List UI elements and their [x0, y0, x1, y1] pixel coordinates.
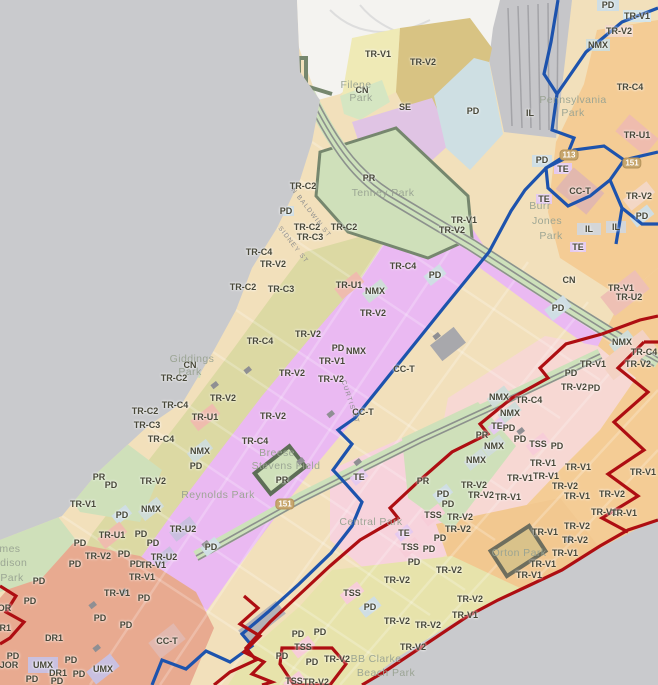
zone-label: TR-V2: [384, 575, 410, 585]
zone-label: TR-V2: [279, 368, 305, 378]
zone-label: TR-V1: [530, 559, 556, 569]
zone-label: TR-V1: [495, 492, 521, 502]
park-label: Park: [0, 572, 23, 584]
zone-label: TR-C4: [631, 347, 658, 357]
zone-label: PD: [118, 549, 131, 559]
highway-shield: 113: [560, 150, 579, 161]
zone-label: CN: [563, 275, 576, 285]
zone-label: TR-V2: [295, 329, 321, 339]
zone-label: PD: [602, 0, 615, 10]
zone-label: TR-V1: [319, 356, 345, 366]
zone-label: PD: [105, 480, 118, 490]
zone-label: JOR: [0, 603, 11, 613]
zone-label: NMX: [500, 408, 520, 418]
park-label: Breese: [259, 447, 295, 459]
zone-label: PR: [276, 475, 289, 485]
zone-label: TR-V2: [461, 480, 487, 490]
zone-label: TSS: [294, 642, 312, 652]
zone-label: TR-U1: [336, 280, 363, 290]
zone-label: TR-V2: [384, 616, 410, 626]
zone-label: DR1: [0, 623, 11, 633]
zone-label: TE: [398, 528, 410, 538]
street-label: CURTIS CT: [340, 379, 361, 424]
zone-label: TSS: [285, 676, 303, 685]
zone-label: TR-V2: [260, 259, 286, 269]
zone-label: TE: [572, 242, 584, 252]
park-label: Giddings: [170, 353, 215, 365]
zone-label: TR-C4: [162, 400, 189, 410]
zone-label: PD: [332, 343, 345, 353]
zone-label: TR-V1: [451, 215, 477, 225]
zone-label: TR-V2: [457, 594, 483, 604]
zone-label: CC-T: [569, 186, 591, 196]
zone-label: TR-V1: [129, 572, 155, 582]
zone-label: PR: [363, 173, 376, 183]
zone-label: PD: [442, 499, 455, 509]
zone-label: IL: [526, 108, 534, 118]
zone-label: TR-U1: [192, 412, 219, 422]
zone-label: PD: [552, 303, 565, 313]
zone-label: TR-V2: [140, 476, 166, 486]
park-label: Park: [561, 107, 584, 119]
zone-label: NMX: [466, 455, 486, 465]
zone-label: TR-V2: [626, 191, 652, 201]
zone-label: TSS: [424, 510, 442, 520]
zone-label: TR-V2: [606, 26, 632, 36]
zone-label: IL: [612, 222, 620, 232]
zone-label: PD: [434, 533, 447, 543]
zone-label: PD: [73, 669, 86, 679]
zone-label: TE: [491, 421, 503, 431]
zone-label: NMX: [190, 446, 210, 456]
zone-label: TR-V1: [630, 467, 656, 477]
zone-label: TR-V2: [260, 411, 286, 421]
park-label: James: [0, 543, 20, 555]
zone-label: TR-V2: [445, 524, 471, 534]
zone-label: TR-U1: [624, 130, 651, 140]
zone-label: PD: [51, 676, 64, 685]
zone-label: TR-C4: [247, 336, 274, 346]
zone-label: PD: [276, 651, 289, 661]
zone-label: TR-V1: [611, 508, 637, 518]
zone-label: PD: [364, 602, 377, 612]
zone-label: TR-V2: [561, 382, 587, 392]
zone-label: NMX: [489, 392, 509, 402]
park-label: Pennsylvania: [539, 94, 606, 106]
zone-label: PR: [476, 430, 489, 440]
zone-label: NMX: [141, 504, 161, 514]
zone-label: TR-C4: [148, 434, 175, 444]
park-label: BB Clarke: [351, 653, 402, 665]
zone-label: TR-V1: [580, 359, 606, 369]
zone-label: PD: [65, 655, 78, 665]
zone-label: PD: [408, 557, 421, 567]
zone-label: PD: [437, 489, 450, 499]
zone-label: TR-V2: [562, 535, 588, 545]
zone-label: PD: [147, 538, 160, 548]
zone-label: TR-V2: [415, 620, 441, 630]
zone-label: TR-V1: [452, 610, 478, 620]
zone-label: TE: [353, 472, 365, 482]
zone-label: UMX: [93, 664, 113, 674]
zone-label: JOR: [0, 660, 18, 670]
zone-label: TR-U1: [99, 530, 126, 540]
zone-label: PD: [69, 559, 82, 569]
zone-label: TSS: [343, 588, 361, 598]
zone-label: PD: [306, 657, 319, 667]
zone-label: TR-V2: [439, 225, 465, 235]
zone-label: NMX: [484, 441, 504, 451]
park-label: Park: [539, 230, 562, 242]
zone-label: TR-C3: [297, 232, 324, 242]
zone-label: PD: [423, 544, 436, 554]
park-label: Tenney Park: [352, 187, 415, 199]
zone-label: TSS: [529, 439, 547, 449]
park-label: Filene: [341, 79, 372, 91]
park-label: Madison: [0, 557, 27, 569]
zone-label: PD: [74, 538, 87, 548]
zone-label: TR-C2: [132, 406, 159, 416]
zone-label: PD: [26, 674, 39, 684]
zone-label: PR: [417, 476, 430, 486]
park-label: Beach Park: [357, 667, 415, 679]
zone-label: TR-C4: [617, 82, 644, 92]
zone-label: TR-V2: [303, 677, 329, 685]
zone-label: TR-C4: [246, 247, 273, 257]
zone-label: PD: [292, 629, 305, 639]
park-label: Reynolds Park: [181, 489, 254, 501]
zone-label: TR-V1: [624, 11, 650, 21]
zone-label: TR-V1: [516, 570, 542, 580]
zone-label: TR-V2: [85, 551, 111, 561]
zone-label: TR-V2: [410, 57, 436, 67]
zone-label: TR-V2: [436, 565, 462, 575]
zone-label: TR-V1: [552, 548, 578, 558]
zone-label: PD: [138, 593, 151, 603]
zone-label: TE: [557, 164, 569, 174]
zone-label: TR-V2: [625, 359, 651, 369]
zone-label: TR-V2: [324, 654, 350, 664]
zone-label: CC-T: [156, 636, 178, 646]
zone-label: TR-V1: [365, 49, 391, 59]
zone-label: PD: [205, 542, 218, 552]
zoning-map-canvas[interactable]: PDTR-V1TR-V2NMXTR-V1TR-V2TR-C4CNSEPDILTR…: [0, 0, 658, 685]
zone-label: PD: [24, 596, 37, 606]
zone-label: PD: [33, 576, 46, 586]
zone-label: NMX: [365, 286, 385, 296]
zone-label: TR-V1: [533, 471, 559, 481]
zone-label: PR: [93, 472, 106, 482]
zone-label: PD: [514, 434, 527, 444]
zone-label: PD: [94, 613, 107, 623]
zone-label: TR-V2: [447, 512, 473, 522]
zone-label: TR-C2: [230, 282, 257, 292]
park-label: Jones: [532, 215, 562, 227]
zone-label: PD: [314, 627, 327, 637]
zone-label: TR-V1: [507, 473, 533, 483]
zone-label: TR-C4: [516, 395, 543, 405]
zone-label: TR-C4: [242, 436, 269, 446]
map-labels-layer: PDTR-V1TR-V2NMXTR-V1TR-V2TR-C4CNSEPDILTR…: [0, 0, 658, 685]
zone-label: TR-C3: [134, 420, 161, 430]
zone-label: PD: [536, 155, 549, 165]
zone-label: TR-V1: [140, 560, 166, 570]
zone-label: PD: [503, 423, 516, 433]
zone-label: TR-V1: [564, 491, 590, 501]
zone-label: PD: [429, 270, 442, 280]
zone-label: PD: [135, 529, 148, 539]
zone-label: PD: [565, 368, 578, 378]
zone-label: NMX: [612, 337, 632, 347]
zone-label: TR-V1: [104, 588, 130, 598]
zone-label: TR-V2: [552, 481, 578, 491]
zone-label: TR-V2: [564, 521, 590, 531]
zone-label: CC-T: [393, 364, 415, 374]
zone-label: TR-U2: [170, 524, 197, 534]
zone-label: PD: [551, 441, 564, 451]
zone-label: SE: [399, 102, 411, 112]
zone-label: PD: [190, 461, 203, 471]
zone-label: PD: [467, 106, 480, 116]
zone-label: PD: [116, 510, 129, 520]
zone-label: TR-U2: [616, 292, 643, 302]
zone-label: TR-V2: [360, 308, 386, 318]
zone-label: TR-V1: [530, 458, 556, 468]
zone-label: PD: [280, 206, 293, 216]
zone-label: PD: [588, 383, 601, 393]
zone-label: TR-V2: [599, 489, 625, 499]
zone-label: TR-C3: [268, 284, 295, 294]
zone-label: TSS: [401, 542, 419, 552]
zone-label: TR-C2: [331, 222, 358, 232]
park-label: Park: [349, 92, 372, 104]
zone-label: PD: [120, 620, 133, 630]
highway-shield: 151: [275, 499, 294, 510]
zone-label: IL: [585, 224, 593, 234]
zone-label: PD: [636, 211, 649, 221]
zone-label: TR-V2: [468, 490, 494, 500]
zone-label: TR-V1: [565, 462, 591, 472]
park-label: Burr: [529, 200, 550, 212]
park-label: Park: [178, 366, 201, 378]
zone-label: TR-V2: [210, 393, 236, 403]
park-label: Central Park: [339, 516, 402, 528]
park-label: Orton Park: [492, 547, 547, 559]
zone-label: TR-V1: [532, 527, 558, 537]
park-label: Stevens Field: [252, 460, 321, 472]
zone-label: TR-C4: [390, 261, 417, 271]
zone-label: DR1: [45, 633, 63, 643]
zone-label: TR-V1: [70, 499, 96, 509]
highway-shield: 151: [622, 158, 641, 169]
zone-label: NMX: [588, 40, 608, 50]
zone-label: TR-V2: [400, 642, 426, 652]
zone-label: NMX: [346, 346, 366, 356]
